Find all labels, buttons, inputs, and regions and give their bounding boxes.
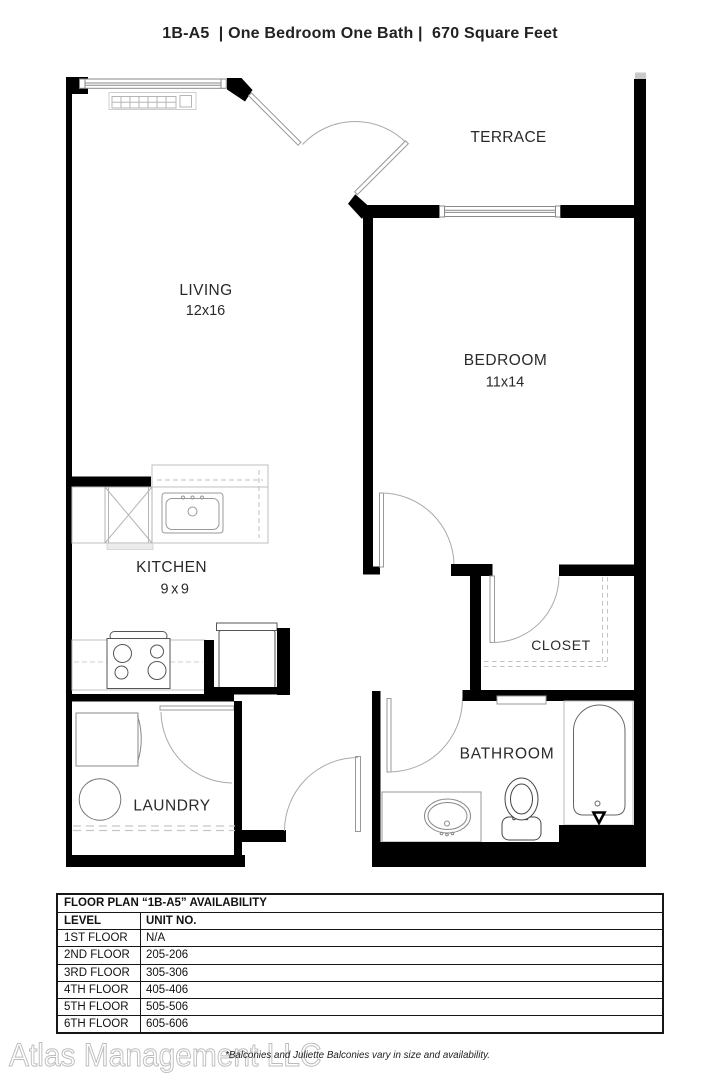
- svg-text:BEDROOM: BEDROOM: [464, 352, 548, 369]
- svg-text:KITCHEN: KITCHEN: [136, 559, 207, 576]
- svg-text:CLOSET: CLOSET: [531, 637, 591, 653]
- svg-text:TERRACE: TERRACE: [470, 129, 546, 146]
- svg-text:BATHROOM: BATHROOM: [460, 746, 555, 763]
- svg-text:LIVING: LIVING: [179, 282, 232, 299]
- svg-text:12x16: 12x16: [186, 303, 226, 319]
- svg-text:9x9: 9x9: [161, 582, 192, 598]
- svg-text:11x14: 11x14: [486, 375, 524, 391]
- svg-text:LAUNDRY: LAUNDRY: [133, 798, 210, 815]
